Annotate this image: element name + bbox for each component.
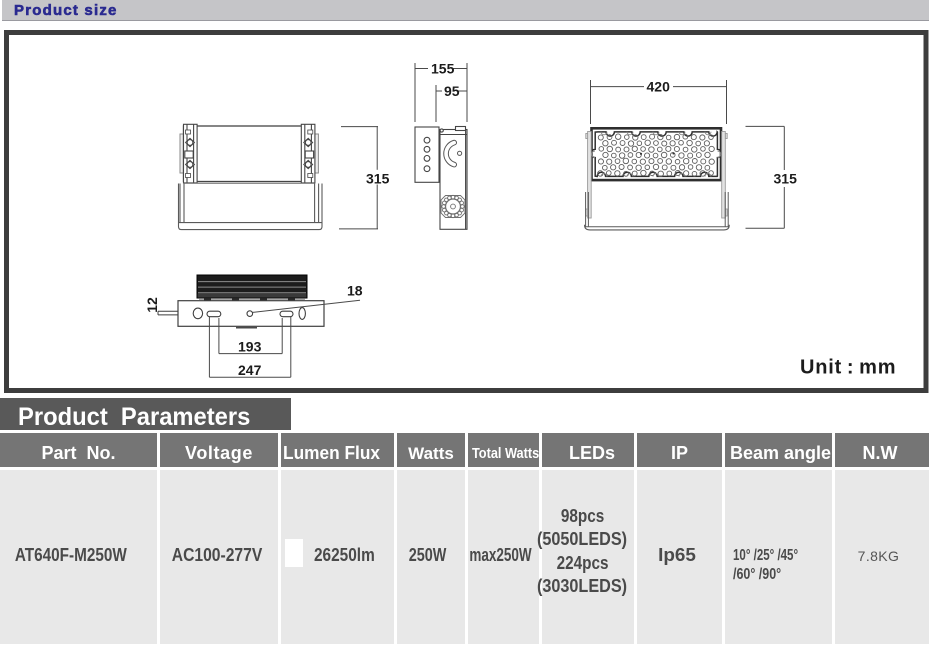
svg-text:Unit : mm: Unit : mm	[800, 357, 896, 379]
svg-text:315: 315	[366, 171, 390, 187]
svg-text:420: 420	[647, 79, 671, 95]
svg-text:95: 95	[444, 83, 460, 99]
svg-text:193: 193	[238, 339, 262, 355]
svg-text:155: 155	[431, 61, 455, 77]
svg-text:247: 247	[238, 362, 262, 378]
svg-text:12: 12	[144, 297, 160, 313]
svg-text:315: 315	[774, 171, 798, 187]
svg-text:18: 18	[347, 283, 363, 299]
